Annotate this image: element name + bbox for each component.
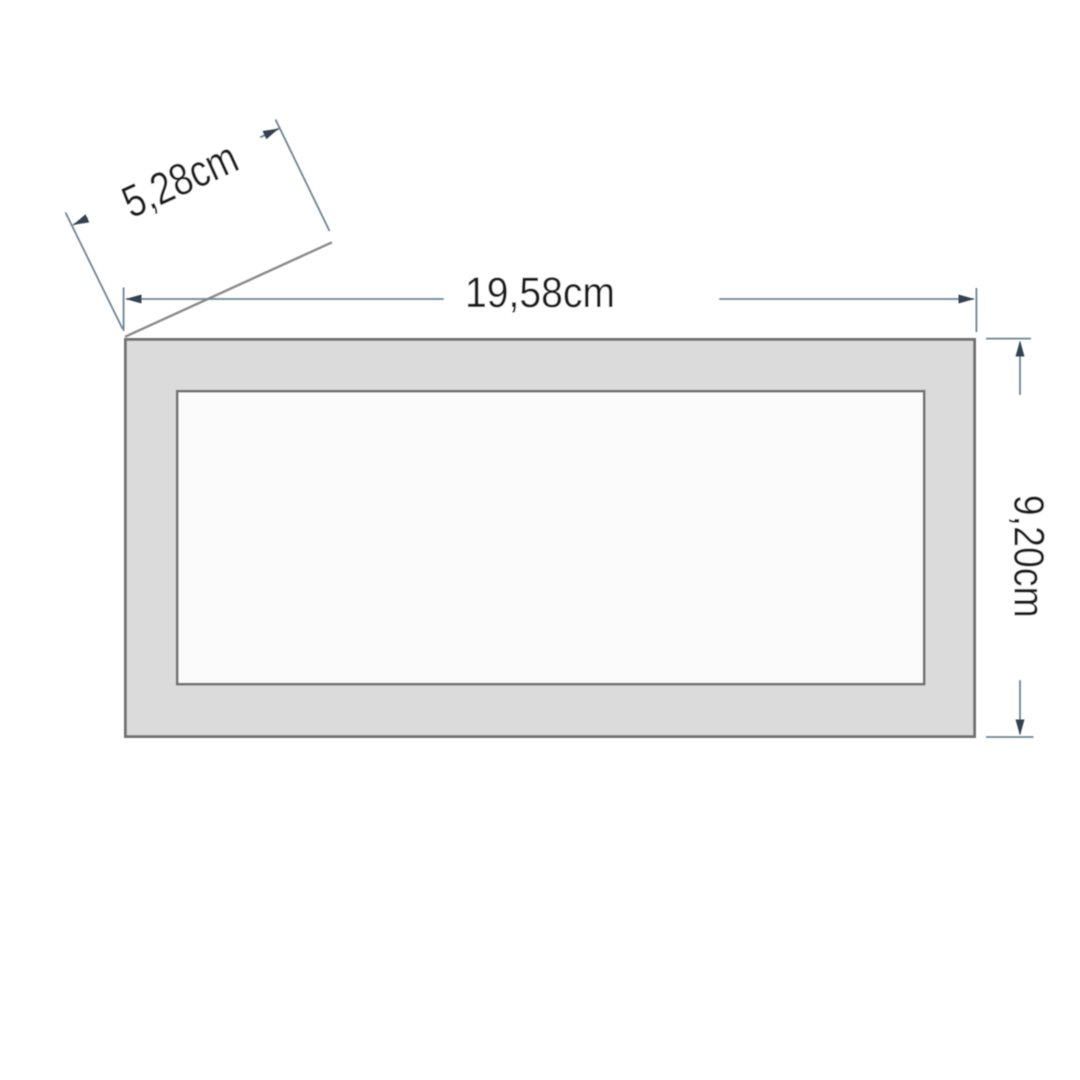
svg-text:9,20cm: 9,20cm [1005,495,1053,618]
svg-text:19,58cm: 19,58cm [465,269,615,317]
